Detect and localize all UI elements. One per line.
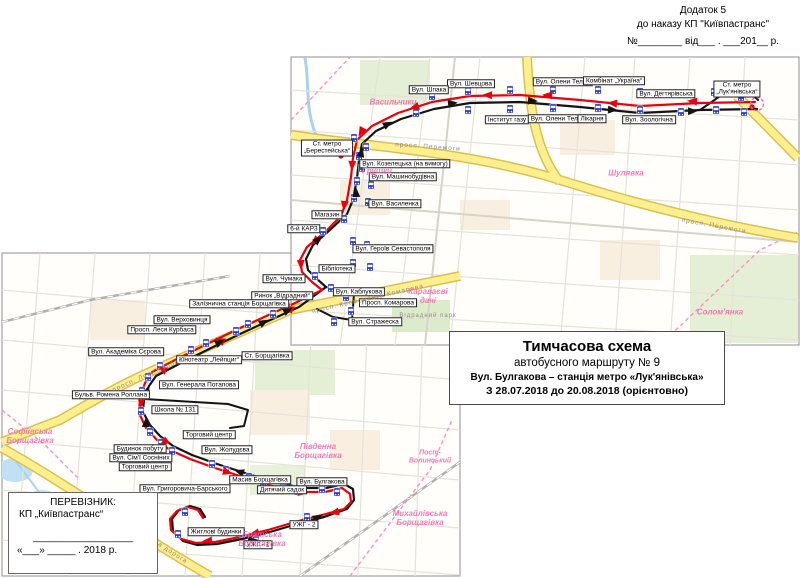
bus-stop-icon: [304, 513, 310, 521]
bus-stop-icon: [169, 447, 175, 455]
bus-stop-icon: [270, 310, 276, 318]
bus-stop-icon: [348, 307, 354, 315]
bus-stop-icon: [465, 106, 471, 114]
scheme-subtitle: автобусного маршруту № 9: [452, 357, 722, 369]
scheme-dates: З 28.07.2018 до 20.08.2018 (орієнтовно): [452, 385, 722, 397]
bus-stop-icon: [147, 428, 153, 436]
bus-stop-icon: [365, 198, 371, 206]
bus-stop-icon: [182, 508, 188, 516]
appendix-note: Додаток 5 до наказу КП "Київпастранс" №_…: [608, 4, 798, 49]
bus-stop-icon: [637, 88, 643, 96]
bus-stop-icon: [280, 483, 286, 491]
bus-stop-icon: [188, 346, 194, 354]
bus-stop-icon: [465, 87, 471, 95]
scheme-title: Тимчасова схема: [452, 338, 722, 355]
appendix-line2: до наказу КП "Київпастранс": [608, 18, 798, 32]
bus-stop-icon: [429, 92, 435, 100]
bus-stop-icon: [637, 106, 643, 114]
bus-stop-icon: [738, 93, 744, 101]
bus-stop-icon: [260, 479, 266, 487]
bus-stop-icon: [343, 293, 349, 301]
bus-stop-icon: [367, 263, 373, 271]
scheme-route-endpoints: Вул. Булгакова – станція метро «Лук'янів…: [452, 372, 722, 383]
bus-stop-icon: [233, 327, 239, 335]
bus-stop-icon: [354, 177, 360, 185]
bus-stop-icon: [175, 530, 181, 538]
bus-stop-icon: [239, 529, 245, 537]
bus-stop-icon: [312, 272, 318, 280]
bus-stop-icon: [319, 485, 325, 493]
bus-stop-icon: [331, 318, 337, 326]
scheme-title-box: Тимчасова схема автобусного маршруту № 9…: [449, 331, 725, 405]
bus-stop-icon: [245, 320, 251, 328]
bus-stop-icon: [341, 215, 347, 223]
bus-stop-icon: [320, 227, 326, 235]
bus-stop-icon: [507, 86, 513, 94]
temporary-route-scheme-document: Вул. ШевцоваВул. Олени ТелігиКомбінат „У…: [0, 0, 800, 578]
bus-stop-icon: [350, 237, 356, 245]
bus-stop-icon: [507, 105, 513, 113]
bus-stop-icon: [678, 90, 684, 98]
bus-stop-icon: [713, 106, 719, 114]
carrier-heading: ПЕРЕВІЗНИК:: [13, 497, 153, 508]
bus-stop-icon: [203, 339, 209, 347]
bus-stop-icon: [145, 373, 151, 381]
carrier-signature-line: __________________: [13, 534, 153, 542]
bus-stop-icon: [359, 164, 365, 172]
bus-stop-icon: [741, 108, 747, 116]
bus-stop-icon: [595, 104, 601, 112]
bus-stop-icon: [138, 407, 144, 415]
bus-stop-icon: [246, 473, 252, 481]
bus-stop-icon: [209, 460, 215, 468]
metro-station-icon: [338, 153, 343, 158]
bus-stop-icon: [364, 241, 370, 249]
bus-stop-icon: [413, 109, 419, 117]
bus-stop-icon: [328, 284, 334, 292]
carrier-name: КП „Київпастранс“: [13, 509, 153, 520]
bus-stop-icon: [595, 86, 601, 94]
bus-stop-icon: [678, 108, 684, 116]
bus-stop-icon: [334, 488, 340, 496]
bus-stop-icon: [550, 104, 556, 112]
bus-stop-icon: [350, 259, 356, 267]
carrier-box: ПЕРЕВІЗНИК: КП „Київпастранс“ __________…: [8, 492, 158, 574]
bus-stop-icon: [368, 181, 374, 189]
bus-stop-icon: [363, 143, 369, 151]
appendix-line1: Додаток 5: [608, 4, 798, 18]
bus-stop-icon: [711, 88, 717, 96]
appendix-number-line: №________ від___ . ___201__ р.: [608, 35, 798, 49]
carrier-date-line: «___» _____ . 2018 р.: [13, 545, 153, 556]
bus-stop-icon: [351, 134, 357, 142]
